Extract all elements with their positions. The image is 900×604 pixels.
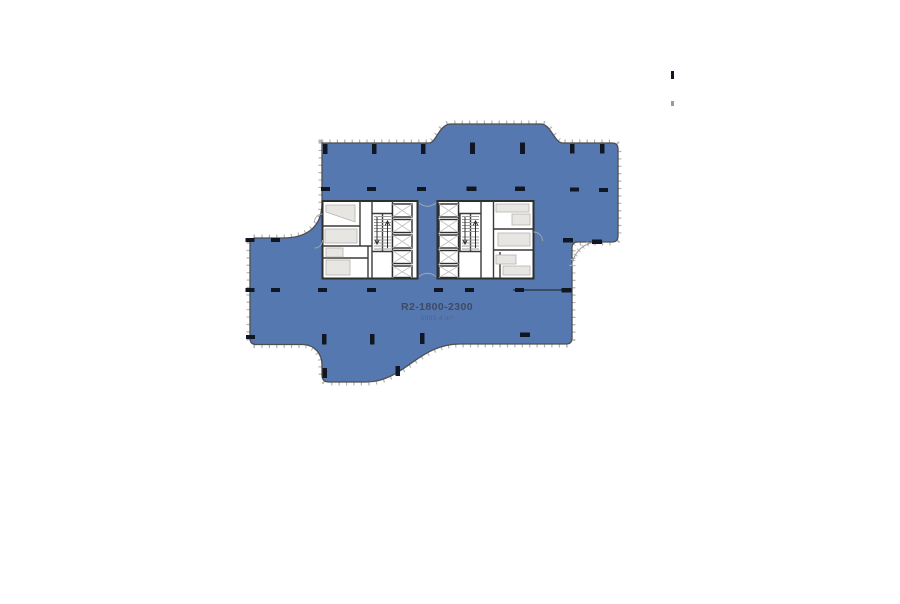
column-marker xyxy=(570,188,579,192)
room-fixture xyxy=(325,229,357,243)
column-marker xyxy=(562,288,572,293)
column-marker xyxy=(372,144,377,154)
column-marker xyxy=(671,71,674,79)
column-marker xyxy=(271,288,280,292)
room-fixture xyxy=(496,255,516,264)
column-marker xyxy=(323,144,328,154)
column-marker xyxy=(599,188,608,192)
column-marker xyxy=(323,368,328,378)
column-marker xyxy=(515,187,525,192)
column-marker xyxy=(600,144,605,154)
unit-area-label: 5005.4 m² xyxy=(357,315,517,322)
column-marker xyxy=(563,238,573,243)
room-fixture xyxy=(496,204,529,212)
column-marker xyxy=(367,288,376,292)
column-marker xyxy=(246,288,255,292)
floorplan-canvas: R2-1800-2300 5005.4 m² xyxy=(0,0,900,604)
column-marker xyxy=(246,238,255,242)
unit-label[interactable]: R2-1800-2300 xyxy=(357,302,517,314)
column-marker xyxy=(417,187,426,191)
unit-label-group[interactable]: R2-1800-2300 5005.4 m² xyxy=(357,302,517,322)
column-marker xyxy=(515,288,524,292)
column-marker xyxy=(520,143,525,155)
column-marker xyxy=(321,187,330,191)
column-marker xyxy=(396,366,401,376)
column-marker xyxy=(246,335,255,339)
room-fixture xyxy=(503,266,530,275)
column-marker xyxy=(570,144,575,154)
room-fixture xyxy=(326,248,343,257)
column-marker xyxy=(420,333,425,344)
room-fixture xyxy=(512,214,530,225)
column-marker xyxy=(467,187,477,192)
floor-region[interactable] xyxy=(250,124,618,382)
column-marker xyxy=(434,288,443,292)
column-marker xyxy=(370,334,375,345)
column-marker xyxy=(421,144,426,154)
setback-arc xyxy=(572,242,598,266)
column-marker xyxy=(322,334,327,345)
column-marker xyxy=(465,288,474,292)
column-marker xyxy=(318,288,327,292)
stray-mark xyxy=(671,101,674,106)
column-marker xyxy=(271,238,280,242)
column-marker xyxy=(520,333,530,338)
room-fixture xyxy=(498,233,530,246)
column-marker xyxy=(367,187,376,191)
column-marker xyxy=(592,240,602,245)
column-marker xyxy=(470,143,475,155)
room-fixture xyxy=(326,260,350,275)
